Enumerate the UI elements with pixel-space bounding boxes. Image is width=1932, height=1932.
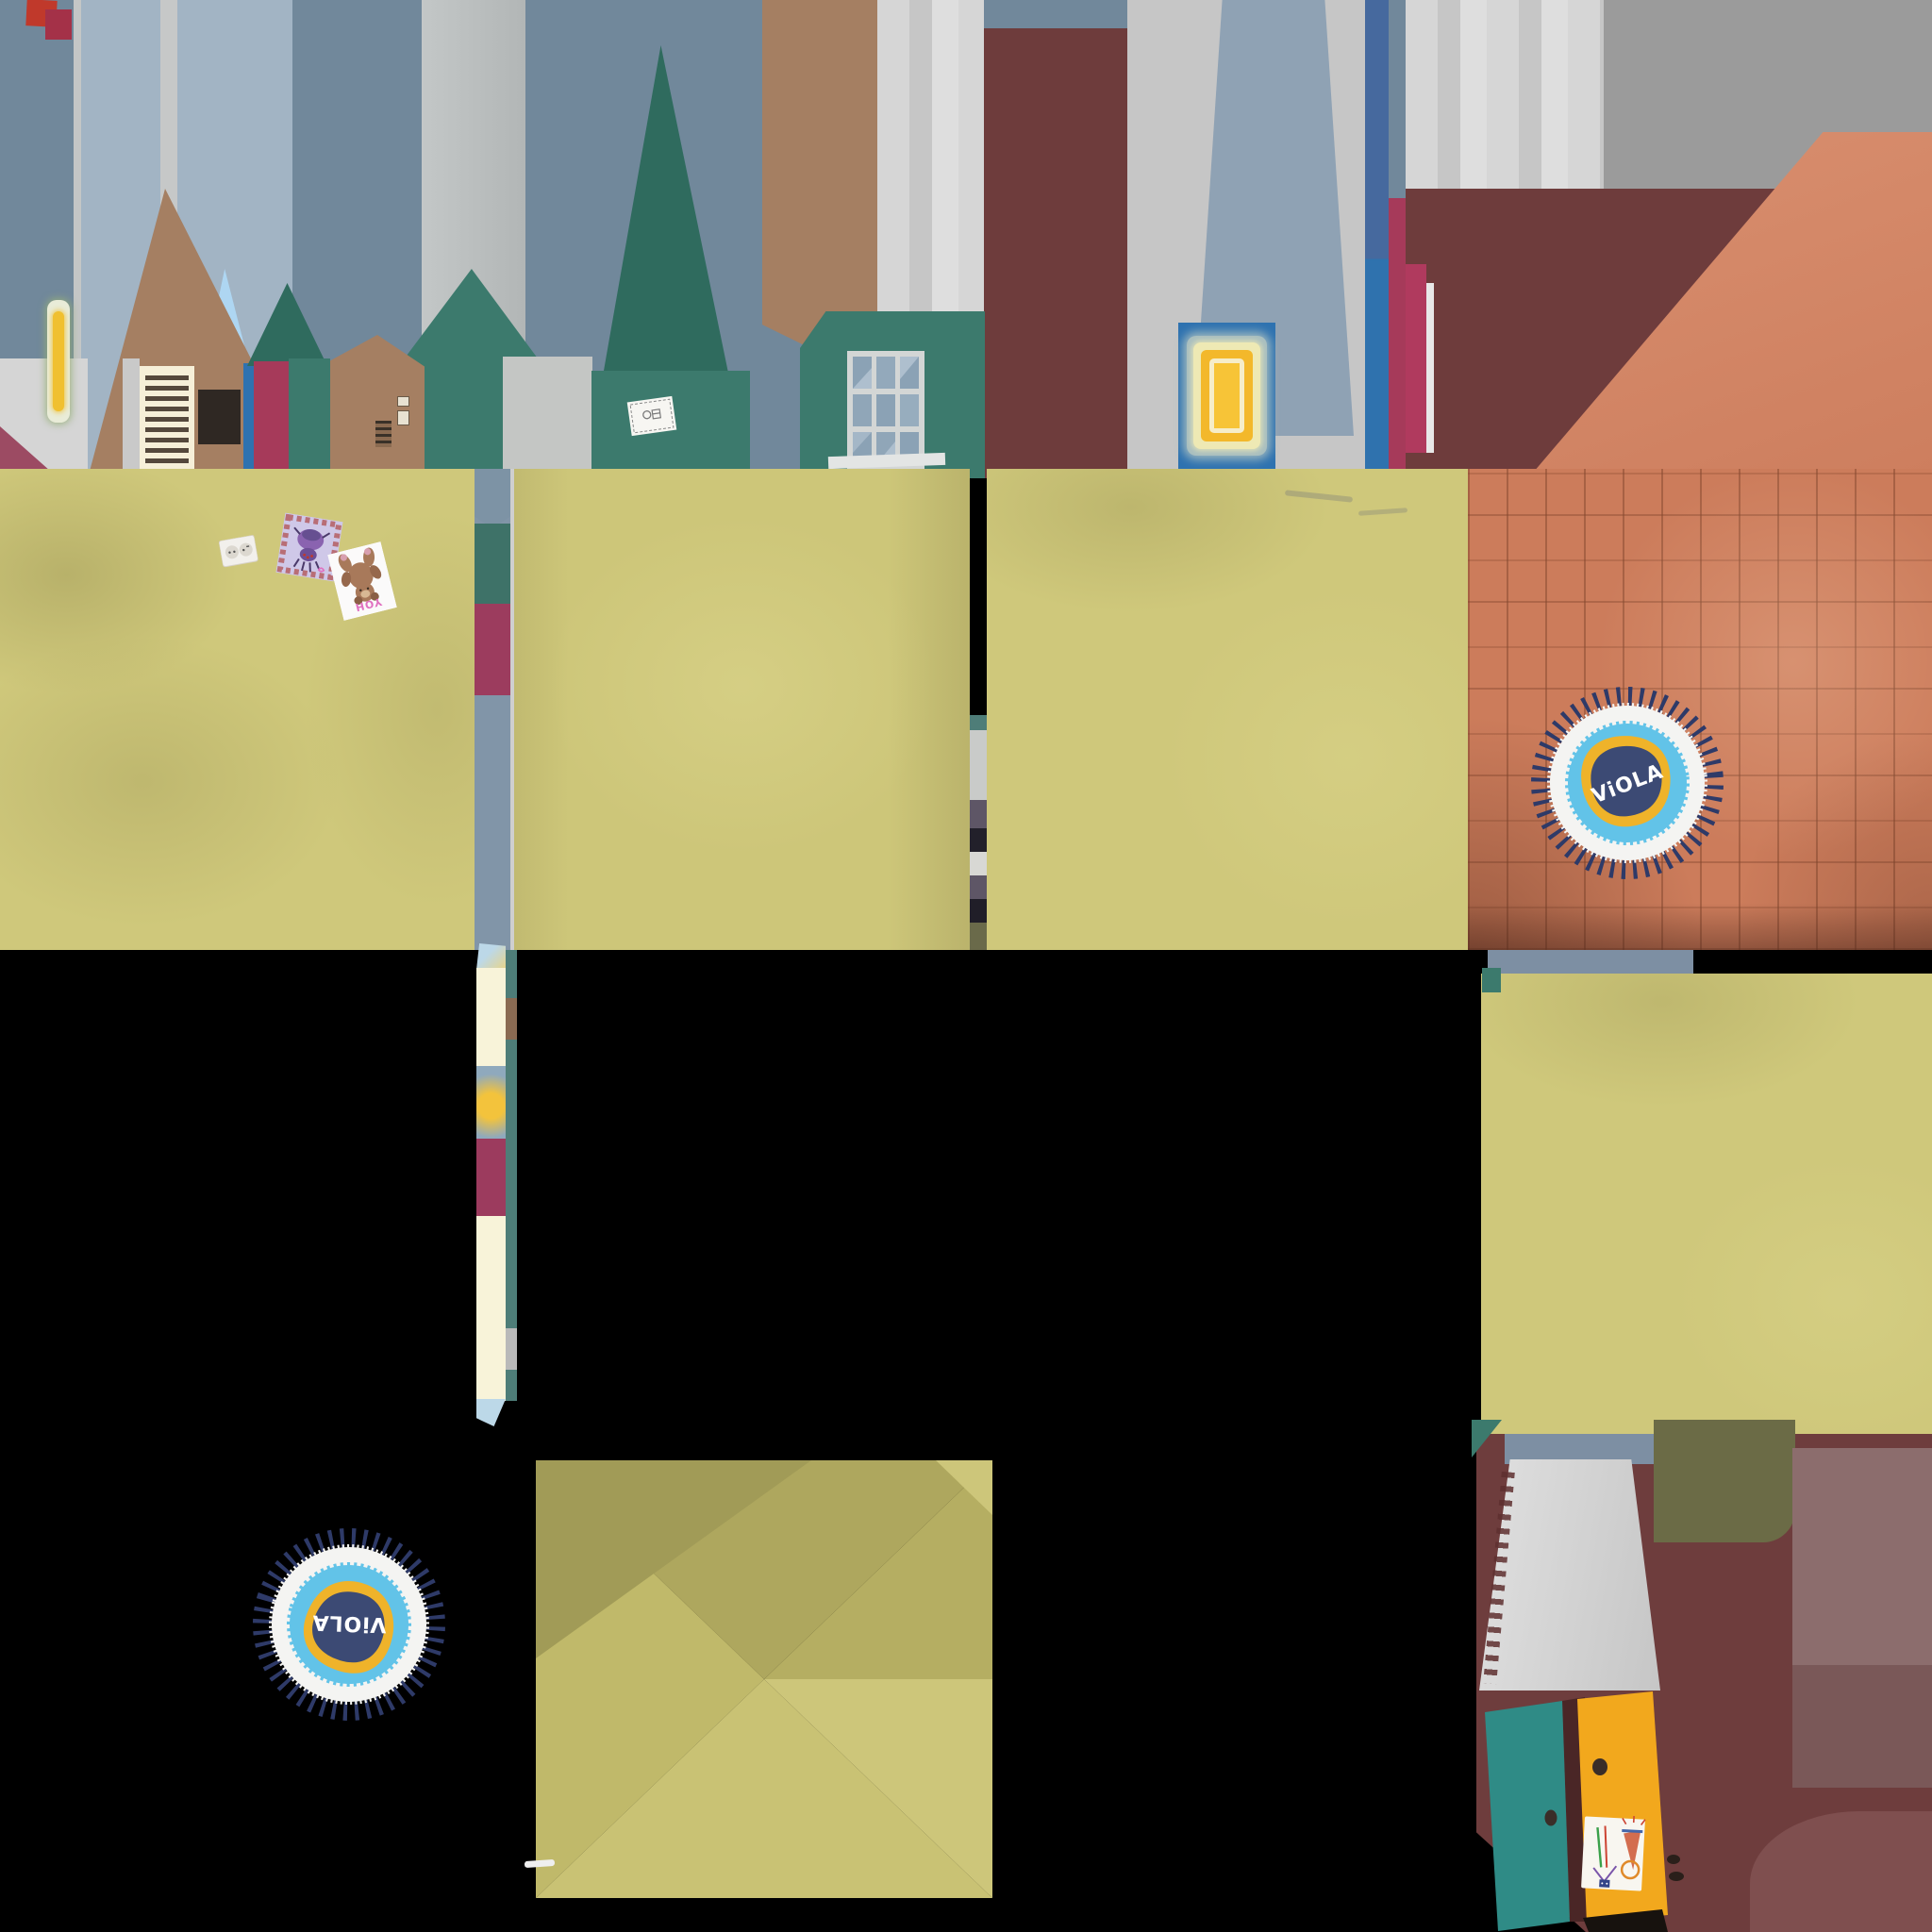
strip2-bottom-wedge	[476, 1399, 506, 1426]
teal-notch-floor-4	[1482, 968, 1501, 992]
teal-panel-small	[289, 358, 330, 478]
child-drawing-sticker	[1581, 1813, 1645, 1890]
blue-strip-door	[243, 363, 254, 478]
wall-plaque-1	[397, 396, 409, 407]
crimson-door	[254, 361, 289, 478]
white-sliver-right	[1426, 283, 1434, 453]
strip2-brown-patch	[506, 998, 517, 1040]
wardrobe-doors	[1472, 1674, 1717, 1932]
mauve-patch-lower	[1792, 1665, 1932, 1788]
divider-strip-2	[476, 943, 517, 1426]
bluegray-bar-under-orange	[1488, 950, 1693, 974]
black-door	[198, 390, 241, 444]
blue-door-painting-host	[1178, 323, 1275, 471]
strip2-maroon	[476, 1139, 506, 1216]
totem-strip	[970, 715, 987, 950]
edge-painting-core	[53, 311, 64, 411]
strip-maroon-seg	[475, 604, 510, 695]
painting-yellow-field	[1201, 350, 1253, 441]
red-mark-2	[45, 9, 72, 40]
mauve-patch-upper	[1792, 1448, 1932, 1665]
facade-band	[0, 0, 1932, 478]
wall-plaque-2	[397, 410, 409, 425]
pinwheel-roof-block	[536, 1460, 992, 1898]
rug-label: ViOLA	[311, 1610, 387, 1637]
blue-strip-right	[1365, 0, 1389, 471]
edge-painting-sliver	[47, 300, 70, 423]
strip2-cream-lower	[476, 1216, 506, 1401]
painting-pale-ring	[1193, 342, 1260, 449]
gray-panel-mid	[503, 357, 592, 478]
totem-purple-1	[970, 800, 987, 828]
totem-purple-2	[970, 875, 987, 899]
olive-patch	[1654, 1420, 1795, 1542]
totem-olive	[970, 923, 987, 950]
viola-rug-2: ViOLA	[213, 1489, 484, 1759]
strip-teal-seg	[475, 524, 510, 604]
strip2-gray-patch	[506, 1328, 517, 1370]
side-dot-2	[1669, 1872, 1684, 1881]
yellow-door-knob	[1592, 1758, 1607, 1775]
totem-lightgray	[970, 730, 987, 800]
side-dot-1	[1667, 1855, 1680, 1864]
orange-floor-bottom-shadow	[1468, 903, 1932, 950]
note-card	[626, 395, 678, 438]
yellow-floor-3	[987, 469, 1468, 950]
shopfront-gray	[123, 358, 140, 478]
vent-grille	[375, 421, 391, 447]
maroon-building-column	[984, 28, 1127, 478]
painting-cream-ring	[1209, 358, 1244, 433]
furniture-corner	[1472, 1420, 1932, 1932]
crimson-sliver-right	[1406, 264, 1426, 453]
teal-door-knob	[1545, 1810, 1557, 1826]
outlet-plate	[219, 535, 258, 567]
texture-atlas-sheet: YOH ViOLA	[0, 0, 1932, 1932]
totem-teal-tip	[970, 715, 987, 730]
yellow-painting	[1187, 336, 1267, 456]
strip2-skylight-cap	[476, 943, 506, 970]
window-panes	[853, 357, 919, 464]
strip2-cream-upper	[476, 968, 506, 1066]
strip-bluegray-notch	[475, 469, 510, 528]
teal-wardrobe-door	[1485, 1701, 1570, 1931]
viola-rug-1: ViOLA	[1508, 664, 1747, 903]
divider-strip-1	[475, 469, 514, 950]
brown-column	[762, 0, 877, 353]
yellow-floor-2	[514, 469, 970, 950]
yellow-floor-4	[1481, 974, 1932, 1438]
totem-white	[970, 852, 987, 875]
totem-black-2	[970, 899, 987, 923]
shutter-panel	[140, 366, 194, 478]
shutter-slats	[145, 375, 189, 470]
strip2-lit-window	[476, 1066, 506, 1139]
totem-black-1	[970, 828, 987, 852]
